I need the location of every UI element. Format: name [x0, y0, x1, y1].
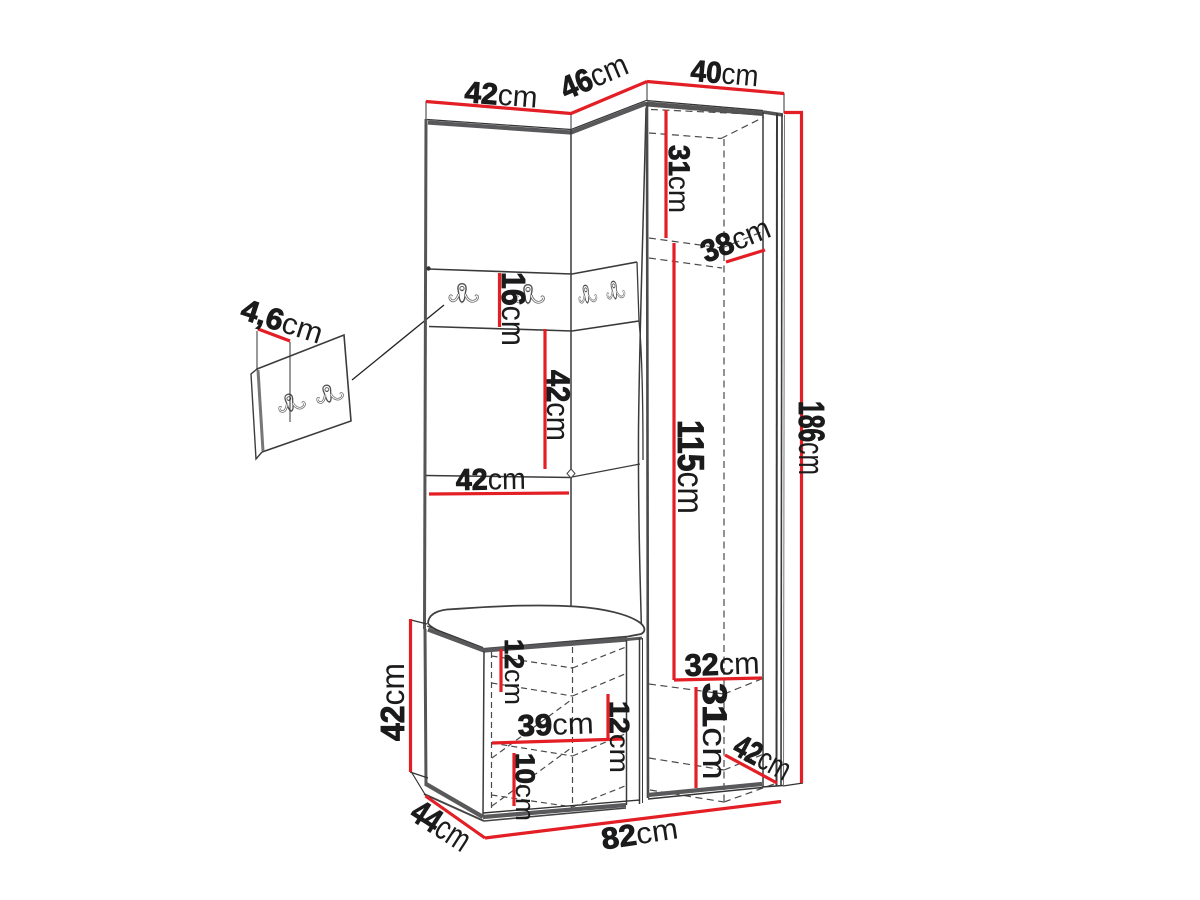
svg-text:42cm: 42cm — [463, 76, 538, 115]
svg-text:16cm: 16cm — [495, 272, 532, 346]
svg-text:186cm: 186cm — [791, 401, 832, 475]
svg-text:42cm: 42cm — [374, 663, 411, 741]
svg-text:39cm: 39cm — [517, 707, 594, 743]
svg-text:31cm: 31cm — [662, 145, 695, 213]
svg-text:40cm: 40cm — [689, 55, 760, 94]
svg-text:10cm: 10cm — [510, 753, 540, 821]
svg-text:115cm: 115cm — [670, 420, 711, 514]
svg-text:32cm: 32cm — [684, 645, 760, 683]
svg-text:31cm: 31cm — [695, 683, 733, 780]
svg-text:42cm: 42cm — [456, 463, 527, 497]
svg-text:42cm: 42cm — [540, 370, 576, 441]
svg-text:12cm: 12cm — [604, 701, 635, 773]
svg-text:12cm: 12cm — [499, 639, 529, 705]
